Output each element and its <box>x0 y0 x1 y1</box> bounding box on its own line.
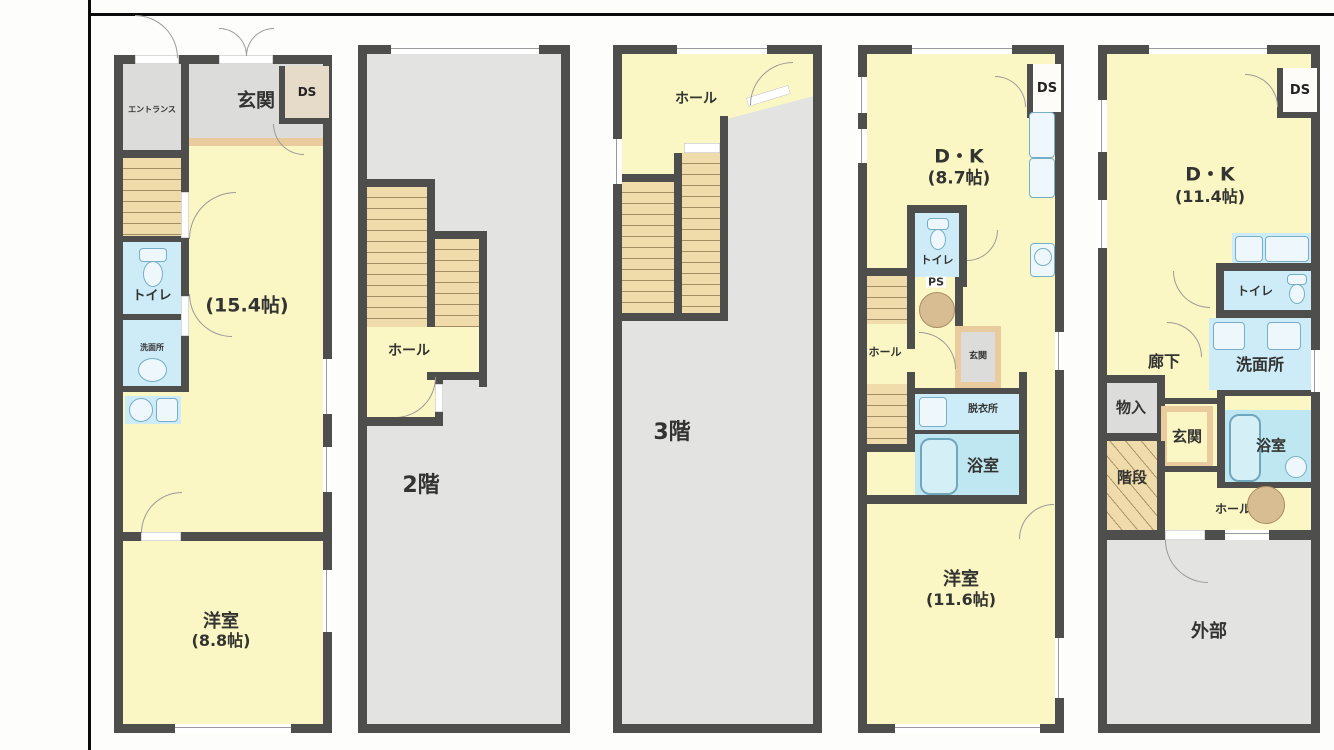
window <box>1055 638 1064 698</box>
wall <box>367 179 435 187</box>
window <box>1311 350 1320 392</box>
wall <box>622 313 728 321</box>
wall <box>959 205 967 287</box>
bath-label: 浴室 <box>967 458 999 474</box>
door-arc <box>1167 322 1202 357</box>
ps-label: PS <box>926 277 946 288</box>
ds-label: DS <box>298 85 317 99</box>
ds-duct-room: DS <box>279 66 329 124</box>
door-arc <box>141 492 182 533</box>
toilet-label: トイレ <box>132 290 171 303</box>
genkan-label: 玄関 <box>1172 430 1202 445</box>
wall <box>1107 530 1311 540</box>
toilet-tank-fixture <box>139 248 167 262</box>
floorplan-sheet: エントランス 玄関 DS トイレ 洗面所 (15.4帖) 洋室 (8.8帖) <box>0 0 1334 750</box>
door-arc <box>1019 504 1054 539</box>
sink-fixture <box>1267 322 1301 350</box>
stairs <box>123 158 181 236</box>
wall <box>1216 263 1224 318</box>
door-arc <box>135 15 178 58</box>
stairs <box>867 276 907 324</box>
wall <box>622 174 674 182</box>
main-room-size-label: (15.4帖) <box>205 297 288 316</box>
wall <box>123 386 189 392</box>
hall-label: ホール <box>388 344 430 358</box>
floor-plan-4: DS D・K (8.7帖) トイレ PS ホール 玄関 <box>858 45 1064 733</box>
sheet-border-left <box>88 0 91 750</box>
wall <box>1157 398 1219 404</box>
bedroom-label: 洋室 <box>203 613 239 631</box>
stairs <box>435 239 479 327</box>
sink-fixture <box>138 358 167 382</box>
bathtub-fixture <box>920 438 958 495</box>
washer-fixture <box>129 398 153 422</box>
wall <box>867 495 1027 504</box>
toilet-bowl-fixture <box>143 261 163 287</box>
toilet-bowl-fixture <box>930 229 946 250</box>
door-arc <box>246 28 274 56</box>
floor-plan-5: DS D・K (11.4帖) トイレ 洗面所 廊下 物入 玄関 <box>1098 45 1320 733</box>
dk-size-label: (11.4帖) <box>1175 189 1245 205</box>
storage-label: 物入 <box>1116 401 1146 416</box>
door-arc <box>273 124 304 155</box>
door-arc <box>919 332 956 369</box>
washroom-label: 洗面所 <box>140 344 164 352</box>
window <box>1055 332 1064 370</box>
toilet-label: トイレ <box>921 255 954 266</box>
wall <box>1224 263 1311 271</box>
stairs <box>682 153 720 313</box>
floor-3-label: 3階 <box>653 422 690 444</box>
window <box>858 129 867 163</box>
dk-label: D・K <box>1185 166 1235 185</box>
window <box>895 724 1040 733</box>
wall <box>1161 466 1217 472</box>
window <box>1098 100 1107 152</box>
floor-plan-1: エントランス 玄関 DS トイレ 洗面所 (15.4帖) 洋室 (8.8帖) <box>114 55 332 733</box>
pillar-circle <box>1247 486 1285 524</box>
door-sill <box>141 532 181 541</box>
wall <box>427 179 435 327</box>
genkan-label: 玄関 <box>969 353 987 362</box>
wall <box>907 205 967 213</box>
window <box>175 724 291 733</box>
kitchen-sink-fixture <box>1029 112 1055 158</box>
stairs <box>867 384 907 444</box>
washer-drum-icon <box>1034 248 1052 266</box>
door-sill <box>435 384 443 412</box>
window <box>1149 45 1267 54</box>
dk-label: D・K <box>934 148 984 167</box>
wall <box>1217 390 1311 396</box>
bedroom-label: 洋室 <box>943 571 979 589</box>
kitchen-sink-fixture <box>1265 236 1309 262</box>
wall <box>427 372 487 380</box>
wall <box>1217 390 1225 484</box>
sink-fixture <box>156 398 178 422</box>
door-arc <box>1173 271 1210 308</box>
ds-duct-room: DS <box>1027 64 1061 118</box>
door-arc <box>219 28 247 56</box>
genkan-label: 玄関 <box>237 92 275 111</box>
bedroom-size-label: (11.6帖) <box>926 592 996 608</box>
kitchen-stove-fixture <box>1029 158 1055 198</box>
window <box>323 570 332 632</box>
hall-label: ホール <box>675 92 717 106</box>
wall <box>367 417 443 426</box>
ds-label: DS <box>1037 81 1057 96</box>
wall <box>479 231 487 387</box>
wall <box>1107 433 1165 441</box>
window <box>613 139 622 184</box>
kitchen-stove-fixture <box>1235 236 1263 262</box>
window <box>677 45 767 54</box>
stairs <box>622 182 674 313</box>
toilet-label: トイレ <box>1237 285 1273 297</box>
door-sill <box>1165 530 1205 540</box>
floor-plan-3: ホール 3階 <box>613 45 822 733</box>
window <box>323 447 332 492</box>
window <box>323 359 332 414</box>
toilet-bowl-fixture <box>1289 284 1305 304</box>
window <box>391 45 539 54</box>
door-arc <box>967 230 998 261</box>
stair-landing-sill <box>684 143 720 153</box>
ds-duct-room: DS <box>1277 68 1317 118</box>
window <box>1225 530 1269 540</box>
washer-fixture <box>1213 322 1245 350</box>
bedroom-size-label: (8.8帖) <box>192 633 251 649</box>
shower-fixture <box>1285 456 1307 478</box>
window <box>1098 200 1107 248</box>
hall-label: ホール <box>1215 503 1251 515</box>
staircase-label: 階段 <box>1117 471 1147 486</box>
wall <box>674 153 682 313</box>
door-arc <box>189 192 236 239</box>
wall <box>1157 441 1165 530</box>
dressing-label: 脱衣所 <box>968 405 998 415</box>
window <box>912 45 1012 54</box>
door-sill <box>219 55 273 64</box>
stairs <box>367 187 427 327</box>
sheet-border-top <box>88 13 1334 16</box>
hall-label: ホール <box>869 347 902 358</box>
wall <box>1107 375 1165 383</box>
window <box>858 77 867 113</box>
door-sill <box>181 296 189 336</box>
ds-label: DS <box>1290 83 1310 98</box>
entrance-lobby-label: エントランス <box>128 106 176 114</box>
bath-label: 浴室 <box>1256 439 1286 454</box>
wall <box>123 150 189 158</box>
sink-fixture <box>919 397 947 427</box>
door-sill <box>181 192 189 238</box>
wall <box>1224 310 1311 318</box>
door-arc <box>1245 74 1278 107</box>
floor-plan-2: ホール 2階 <box>358 45 570 733</box>
washroom-label: 洗面所 <box>1236 357 1284 373</box>
pipe-space-circle <box>919 292 955 328</box>
wall <box>1019 372 1027 495</box>
exterior-label: 外部 <box>1191 623 1227 641</box>
door-arc <box>995 76 1026 107</box>
floor-2-label: 2階 <box>402 475 439 497</box>
wall <box>720 116 728 313</box>
wall <box>907 268 915 332</box>
wall <box>907 372 915 452</box>
dk-size-label: (8.7帖) <box>928 171 991 188</box>
